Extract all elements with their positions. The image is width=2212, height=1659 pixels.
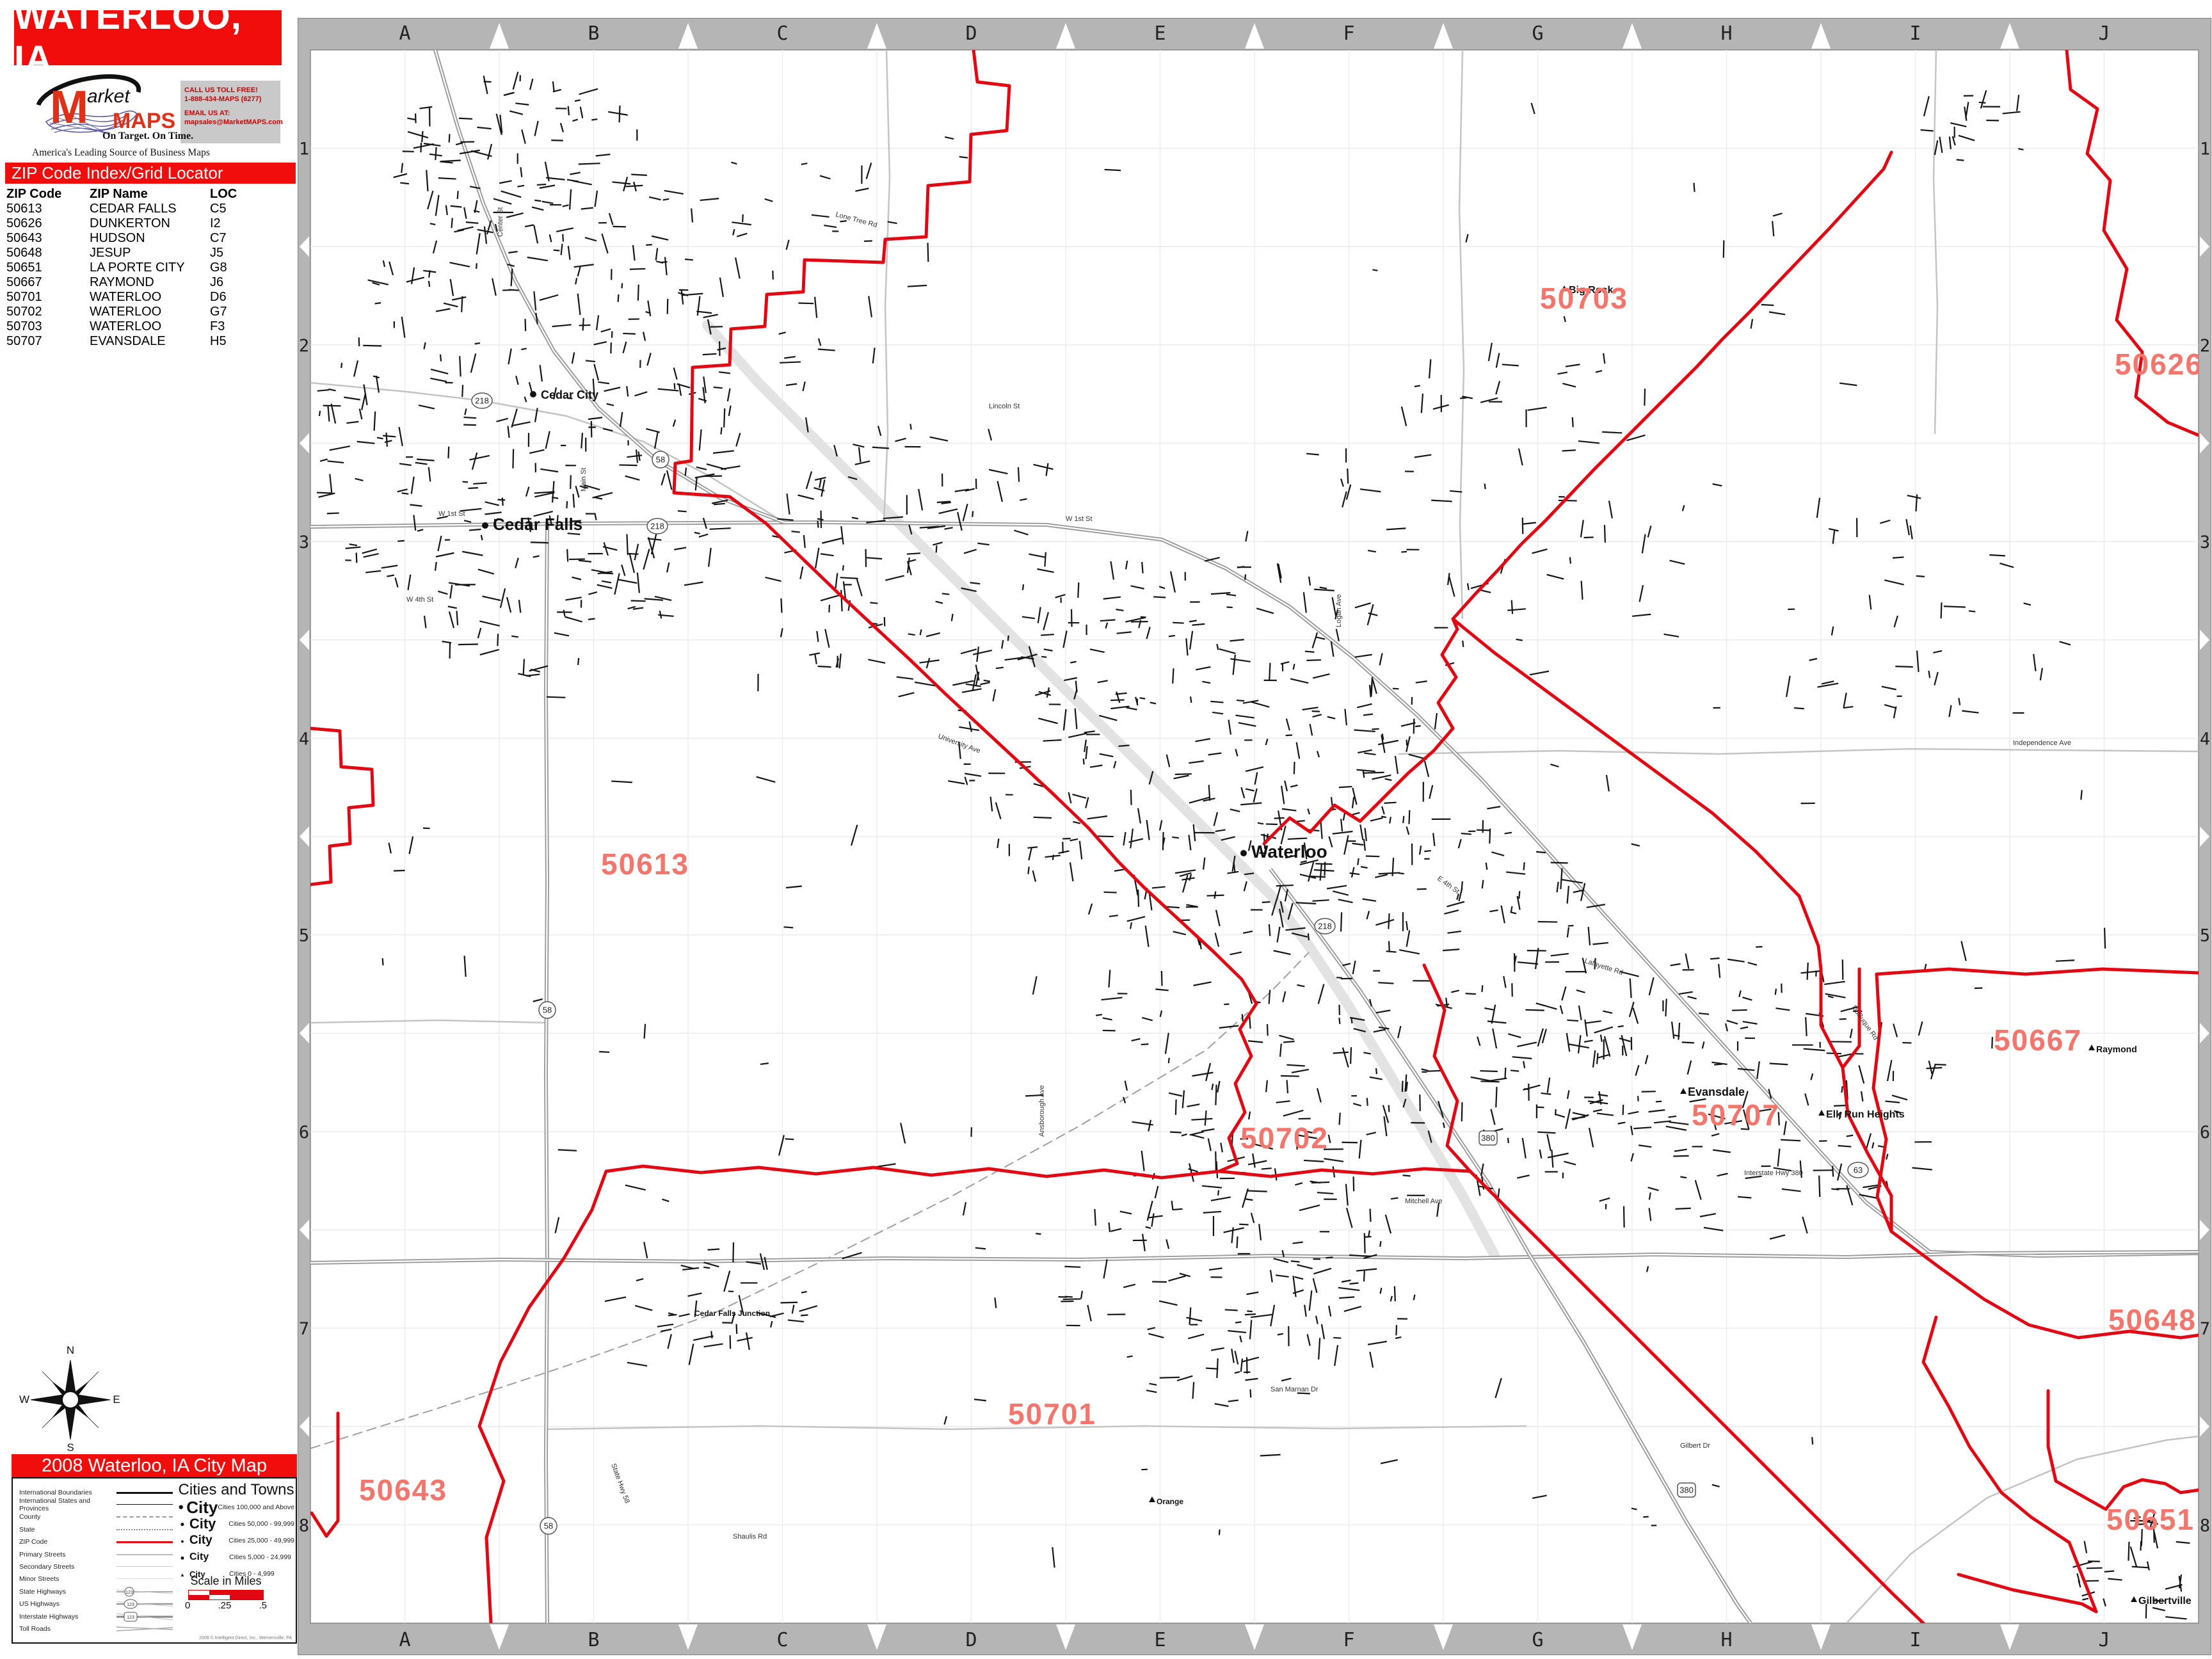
zip-code: 50651	[6, 260, 90, 275]
col-loc: LOC	[210, 187, 248, 202]
zip-name: CEDAR FALLS	[90, 202, 210, 216]
compass-s: S	[67, 1441, 74, 1453]
grid-letter: B	[588, 22, 599, 45]
grid-number: 2	[2200, 336, 2210, 356]
svg-text:58: 58	[543, 1006, 552, 1015]
svg-text:123: 123	[127, 1615, 134, 1620]
street-label: Center St	[497, 207, 504, 237]
marketmaps-logo: M arket MAPS CALL US TOLL FREE! 1-888-43…	[32, 72, 298, 160]
zip-index-row: 50702 WATERLOO G7	[6, 305, 294, 319]
zip-code-label: 50702	[1240, 1121, 1329, 1155]
grid-letter: D	[965, 22, 977, 45]
svg-text:218: 218	[650, 522, 664, 531]
street-label: Shaulis Rd	[733, 1533, 767, 1541]
zip-name: HUDSON	[90, 231, 210, 246]
legend-item: International States and Provinces	[19, 1498, 177, 1511]
zip-index-table: ZIP Code ZIP Name LOC 50613 CEDAR FALLS …	[6, 187, 294, 349]
grid-letter: I	[1909, 1629, 1921, 1651]
scale-ticks: 0.25.5	[185, 1600, 267, 1611]
zip-code-label: 50667	[1994, 1023, 2082, 1057]
zip-index-row: 50651 LA PORTE CITY G8	[6, 260, 294, 275]
legend-item-label: County	[19, 1513, 116, 1521]
hwy-state-line-icon: 123	[116, 1587, 173, 1597]
grid-letter: J	[2098, 22, 2110, 45]
city-label: Cedar Falls Junction	[694, 1309, 770, 1318]
zip-code: 50643	[6, 231, 90, 246]
zip-loc: J6	[210, 275, 248, 290]
county-line-icon	[116, 1512, 173, 1522]
legend-item-label: State Highways	[19, 1588, 116, 1596]
svg-text:380: 380	[1481, 1134, 1495, 1143]
grid-number: 4	[2200, 729, 2210, 749]
street-label: W 1st St	[438, 510, 465, 518]
grid-letter: E	[1154, 22, 1166, 45]
zip-code: 50707	[6, 334, 90, 349]
city-label: Orange	[1157, 1497, 1183, 1506]
grid-letter: C	[776, 1629, 788, 1651]
zip-code-label: 50703	[1540, 282, 1628, 315]
city-class-desc: Cities 5,000 - 24,999	[229, 1553, 291, 1561]
city-square-icon: ■	[180, 1555, 184, 1561]
legend-item-label: Minor Streets	[19, 1575, 116, 1583]
col-zip-name: ZIP Name	[90, 187, 210, 202]
compass-rose-icon: N E S W	[19, 1341, 122, 1453]
map-poster: WATERLOO, IA M arket MAPS CALL US TOLL F…	[0, 0, 2212, 1659]
city-dot-md-icon: ●	[180, 1538, 184, 1544]
grid-number: 3	[2200, 533, 2210, 552]
hwy-us-line-icon: 123	[116, 1599, 173, 1609]
zip-index-row: 50648 JESUP J5	[6, 246, 294, 260]
legend-body: International Boundaries International S…	[12, 1477, 297, 1644]
zip-loc: C5	[210, 202, 248, 216]
legend-item: Secondary Streets	[19, 1560, 177, 1573]
zip-loc: G8	[210, 260, 248, 275]
legend-item-label: International States and Provinces	[19, 1497, 116, 1512]
city-label: Waterloo	[1251, 842, 1327, 862]
zip-code: 50701	[6, 290, 90, 305]
hwy-int-line-icon: 123	[116, 1612, 173, 1622]
legend-item: US Highways 123	[19, 1598, 177, 1610]
grid-letter: A	[399, 1629, 410, 1651]
zip-loc: C7	[210, 231, 248, 246]
zip-code: 50613	[6, 202, 90, 216]
svg-text:58: 58	[656, 455, 665, 465]
city-label: Raymond	[2096, 1044, 2137, 1054]
street-label: San Marnan Dr	[1270, 1386, 1318, 1393]
zip-loc: H5	[210, 334, 248, 349]
street-label: W 4th St	[406, 596, 433, 604]
city-label: Elk Run Heights	[1826, 1109, 1905, 1120]
state-line-icon	[116, 1525, 173, 1535]
grid-number: 6	[299, 1123, 309, 1142]
svg-text:218: 218	[1318, 922, 1332, 931]
grid-letter: G	[1532, 1629, 1543, 1651]
zip-code-label: 50626	[2115, 348, 2203, 381]
grid-letter: H	[1720, 22, 1732, 45]
zip-code: 50648	[6, 246, 90, 260]
scale-tick: .25	[218, 1600, 231, 1611]
zip-name: RAYMOND	[90, 275, 210, 290]
city-class-label: City	[187, 1534, 228, 1548]
legend-item-label: State	[19, 1526, 116, 1534]
legend-item: County	[19, 1511, 177, 1523]
grid-letter: G	[1532, 22, 1543, 45]
legend-item-label: Toll Roads	[19, 1625, 116, 1633]
street-label: Logan Ave	[1335, 594, 1343, 627]
states-line-icon	[116, 1500, 173, 1510]
scale-title: Scale in Miles	[178, 1575, 274, 1588]
zip-loc: J5	[210, 246, 248, 260]
grid-number: 8	[2200, 1516, 2210, 1535]
grid-number: 3	[299, 533, 309, 552]
city-class-row: ● City Cities 100,000 and Above	[178, 1499, 294, 1516]
grid-letter: D	[965, 1629, 977, 1651]
toll-line-icon	[116, 1624, 173, 1634]
contact-line: 1-888-434-MAPS (6277)	[184, 95, 276, 104]
city-label: Cedar Falls	[493, 515, 582, 534]
grid-number: 5	[299, 926, 309, 946]
svg-text:218: 218	[475, 396, 489, 406]
legend-items: International Boundaries International S…	[19, 1486, 177, 1635]
zip-index-title: ZIP Code Index/Grid Locator	[5, 163, 296, 184]
logo-market: arket	[87, 86, 131, 107]
street-label: Mitchell Ave	[1405, 1198, 1443, 1205]
grid-number: 7	[2200, 1319, 2210, 1339]
contact-line: mapsales@MarketMAPS.com	[184, 118, 276, 127]
compass-n: N	[67, 1344, 74, 1356]
street-label: Independence Ave	[2013, 739, 2071, 747]
cities-title: Cities and Towns	[178, 1481, 294, 1499]
zip-name: EVANSDALE	[90, 334, 210, 349]
legend-title: 2008 Waterloo, IA City Map	[12, 1454, 297, 1477]
city-map-canvas: 21821821863585858380380Lincoln StW 1st S…	[298, 18, 2211, 1655]
city-class-desc: Cities 25,000 - 49,999	[228, 1537, 294, 1544]
zip-index-row: 50643 HUDSON C7	[6, 231, 294, 246]
primary-line-icon	[116, 1550, 173, 1560]
grid-number: 1	[2200, 140, 2210, 159]
zip-index-row: 50626 DUNKERTON I2	[6, 216, 294, 231]
contact-line: CALL US TOLL FREE!	[184, 86, 276, 95]
grid-number: 5	[2200, 926, 2210, 946]
zip-code: 50703	[6, 319, 90, 334]
svg-text:63: 63	[1854, 1166, 1863, 1175]
legend-item-label: Interstate Highways	[19, 1613, 116, 1621]
legend-item-label: ZIP Code	[19, 1538, 116, 1546]
city-class-label: City	[187, 1551, 229, 1563]
contact-box: CALL US TOLL FREE! 1-888-434-MAPS (6277)…	[180, 81, 280, 143]
city-class-label: City	[184, 1498, 218, 1518]
zip-code-label: 50613	[601, 847, 689, 881]
legend-item: Toll Roads	[19, 1623, 177, 1635]
zip-loc: F3	[210, 319, 248, 334]
zip-loc: G7	[210, 305, 248, 319]
street-label: Gilbert Dr	[1680, 1442, 1710, 1450]
zip-name: LA PORTE CITY	[90, 260, 210, 275]
zip-code-label: 50651	[2106, 1503, 2195, 1536]
street-label: Lincoln St	[989, 403, 1020, 410]
legend-item: State Highways 123	[19, 1585, 177, 1598]
svg-text:123: 123	[127, 1603, 134, 1607]
legend-item: Primary Streets	[19, 1548, 177, 1560]
street-label: Interstate Hwy 380	[1744, 1169, 1803, 1177]
legend-item-label: Secondary Streets	[19, 1563, 116, 1571]
map-legend: 2008 Waterloo, IA City Map International…	[12, 1454, 297, 1645]
zip-index-row: 50701 WATERLOO D6	[6, 290, 294, 305]
legend-item-label: International Boundaries	[19, 1489, 116, 1496]
zip-name: WATERLOO	[90, 305, 210, 319]
zip-code: 50702	[6, 305, 90, 319]
grid-letter: C	[776, 22, 788, 45]
logo-m: M	[50, 82, 88, 133]
legend-item: State	[19, 1523, 177, 1535]
grid-letter: E	[1154, 1629, 1166, 1651]
grid-number: 2	[299, 336, 309, 356]
compass-e: E	[113, 1393, 120, 1406]
zip-code-label: 50648	[2108, 1303, 2197, 1336]
street-label: Ansborough Ave	[1038, 1085, 1046, 1137]
city-dot-icon	[482, 522, 488, 529]
grid-letter: F	[1343, 22, 1354, 45]
grid-letter: H	[1720, 1629, 1732, 1651]
minor-line-icon	[116, 1574, 173, 1584]
city-class-desc: Cities 50,000 - 99,999	[228, 1520, 294, 1528]
zip-code-label: 50701	[1008, 1397, 1096, 1431]
legend-copyright: 2008 © Intelligent Direct, Inc., Werners…	[199, 1636, 292, 1640]
secondary-line-icon	[116, 1562, 173, 1572]
zip-name: DUNKERTON	[90, 216, 210, 231]
legend-item: Interstate Highways 123	[19, 1610, 177, 1623]
zip-code-label: 50707	[1692, 1098, 1780, 1132]
legend-item-label: US Highways	[19, 1600, 116, 1608]
zip-index-row: 50667 RAYMOND J6	[6, 275, 294, 290]
grid-number: 1	[299, 140, 309, 159]
city-dot-lg-icon: ●	[180, 1519, 184, 1528]
intl-line-icon	[116, 1487, 173, 1498]
scale-tick: .5	[259, 1600, 267, 1611]
city-class-label: City	[187, 1516, 228, 1532]
grid-number: 8	[299, 1516, 309, 1535]
zip-code-label: 50643	[359, 1473, 447, 1507]
grid-letter: F	[1343, 1629, 1354, 1651]
zip-index-row: 50707 EVANSDALE H5	[6, 334, 294, 349]
street-label: W 1st St	[1066, 515, 1093, 523]
grid-number: 6	[2200, 1123, 2210, 1142]
zip-index-header: ZIP Code ZIP Name LOC	[6, 187, 294, 202]
city-dot-icon	[1240, 850, 1247, 856]
svg-text:380: 380	[1679, 1486, 1694, 1495]
grid-letter: B	[588, 1629, 599, 1651]
grid-letter: A	[399, 22, 410, 45]
svg-text:123: 123	[125, 1591, 133, 1595]
zip-index-row: 50613 CEDAR FALLS C5	[6, 202, 294, 216]
zip-loc: I2	[210, 216, 248, 231]
svg-text:58: 58	[544, 1521, 553, 1531]
zip-loc: D6	[210, 290, 248, 305]
logo-subtitle: America's Leading Source of Business Map…	[32, 147, 243, 159]
scale-tick: 0	[185, 1600, 190, 1611]
city-class-row: ● City Cities 25,000 - 49,999	[178, 1532, 294, 1549]
compass-w: W	[19, 1393, 29, 1406]
city-class-row: ■ City Cities 5,000 - 24,999	[178, 1549, 294, 1566]
grid-number: 7	[299, 1319, 309, 1339]
legend-item: ZIP Code	[19, 1536, 177, 1548]
grid-letter: J	[2098, 1629, 2110, 1651]
street-label: Main St	[580, 468, 588, 492]
city-label: Gilbertville	[2138, 1596, 2192, 1607]
grid-number: 4	[299, 729, 309, 749]
logo-tagline: On Target. On Time.	[102, 131, 193, 142]
grid-letter: I	[1909, 22, 1921, 45]
zip-index-row: 50703 WATERLOO F3	[6, 319, 294, 334]
poster-title: WATERLOO, IA	[14, 10, 282, 65]
zip-code: 50626	[6, 216, 90, 231]
city-label: Cedar City	[541, 389, 598, 401]
zip-name: JESUP	[90, 246, 210, 260]
zip-name: WATERLOO	[90, 290, 210, 305]
zip-code: 50667	[6, 275, 90, 290]
logo-maps: MAPS	[113, 109, 175, 133]
city-dot-icon	[530, 391, 536, 397]
col-zip-code: ZIP Code	[6, 187, 90, 202]
cities-and-towns: Cities and Towns ● City Cities 100,000 a…	[178, 1481, 294, 1582]
city-dot-xl-icon: ●	[178, 1502, 184, 1512]
contact-line: EMAIL US AT:	[184, 109, 276, 118]
scale-block: Scale in Miles 0.25.5	[178, 1575, 274, 1611]
legend-item-label: Primary Streets	[19, 1551, 116, 1559]
zip-name: WATERLOO	[90, 319, 210, 334]
city-class-row: ● City Cities 50,000 - 99,999	[178, 1516, 294, 1532]
scale-bar-icon	[188, 1590, 264, 1600]
city-label: Evansdale	[1688, 1086, 1745, 1098]
legend-item: Minor Streets	[19, 1573, 177, 1585]
zip-line-icon	[116, 1537, 173, 1547]
city-class-desc: Cities 100,000 and Above	[218, 1503, 294, 1511]
